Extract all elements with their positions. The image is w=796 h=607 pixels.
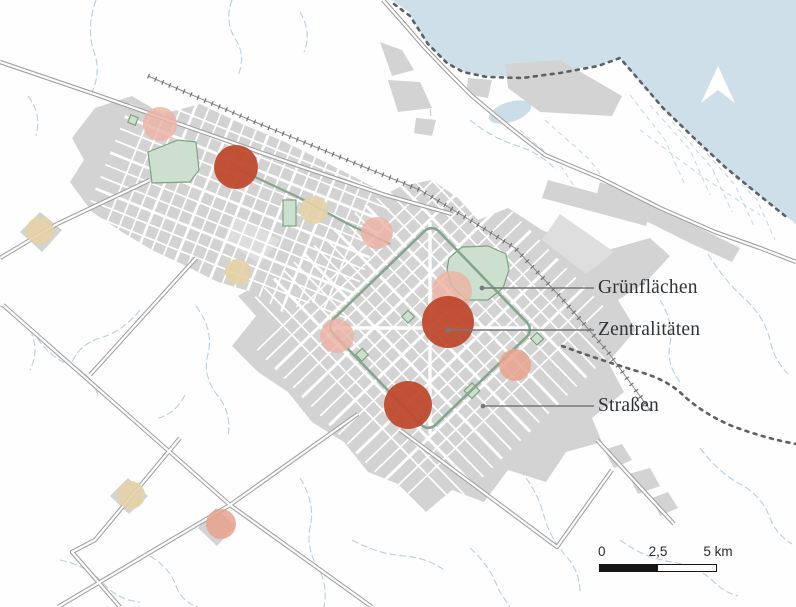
centrality-major: [422, 296, 474, 348]
legend-label-zentralitaeten: Zentralitäten: [598, 318, 700, 342]
leader-dot: [446, 328, 451, 333]
scale-tick-mid: 2,5: [649, 544, 668, 559]
legend-label-gruenflaechen: Grünflächen: [598, 276, 698, 300]
centrality-medium: [143, 107, 177, 141]
centrality-major: [214, 145, 258, 189]
scale-bar: 0 2,5 5 km: [590, 544, 750, 582]
centrality-minor: [300, 196, 328, 224]
scale-tick-start: 0: [598, 544, 606, 559]
map-figure: Grünflächen Zentralitäten Straßen 0 2,5 …: [0, 0, 796, 607]
leader-dot: [481, 404, 486, 409]
centrality-medium: [320, 319, 354, 353]
centrality-major: [384, 381, 432, 429]
centrality-medium: [361, 217, 393, 249]
port-area: [388, 80, 432, 112]
map-canvas: [0, 0, 796, 607]
centrality-medium: [499, 349, 531, 381]
leader-dot: [480, 286, 485, 291]
plaza: [283, 200, 296, 226]
port-area: [380, 42, 414, 76]
centrality-medium: [206, 509, 236, 539]
legend-label-strassen: Straßen: [598, 394, 659, 418]
scale-tick-end: 5 km: [703, 544, 732, 559]
scale-bar-rule: [599, 564, 717, 572]
centrality-minor: [225, 259, 251, 285]
centrality-minor: [26, 217, 54, 245]
centrality-minor: [117, 481, 145, 509]
port-area: [414, 118, 436, 136]
